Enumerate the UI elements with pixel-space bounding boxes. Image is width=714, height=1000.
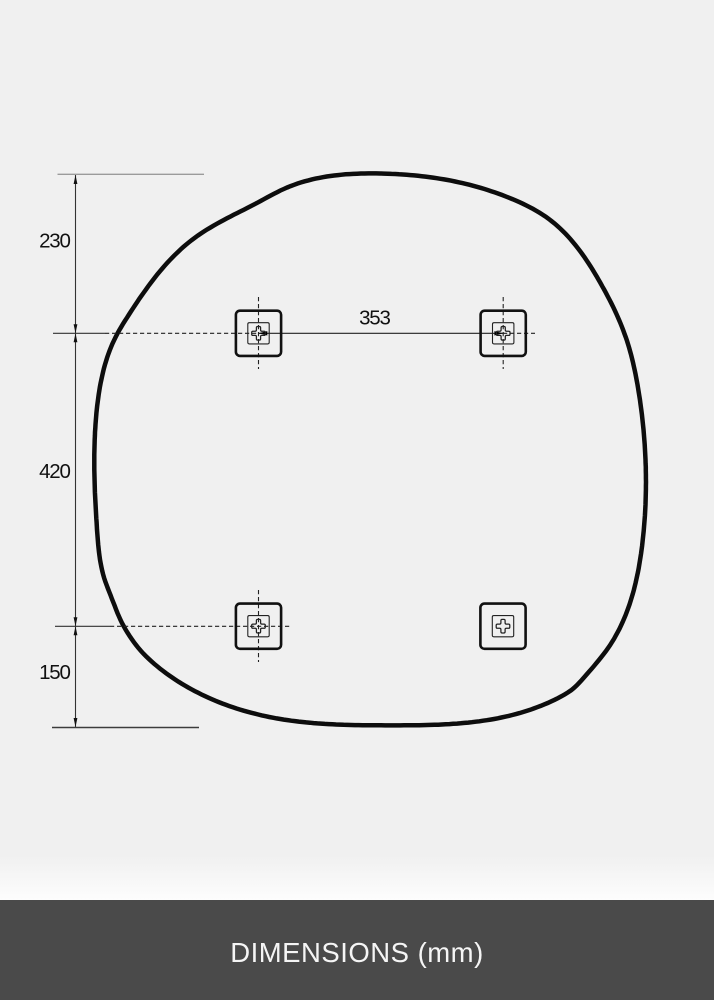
svg-text:230: 230 <box>39 229 70 252</box>
svg-text:353: 353 <box>359 306 390 329</box>
svg-text:420: 420 <box>39 460 70 483</box>
svg-text:DIMENSIONS (mm): DIMENSIONS (mm) <box>230 937 483 968</box>
svg-text:150: 150 <box>39 661 70 684</box>
